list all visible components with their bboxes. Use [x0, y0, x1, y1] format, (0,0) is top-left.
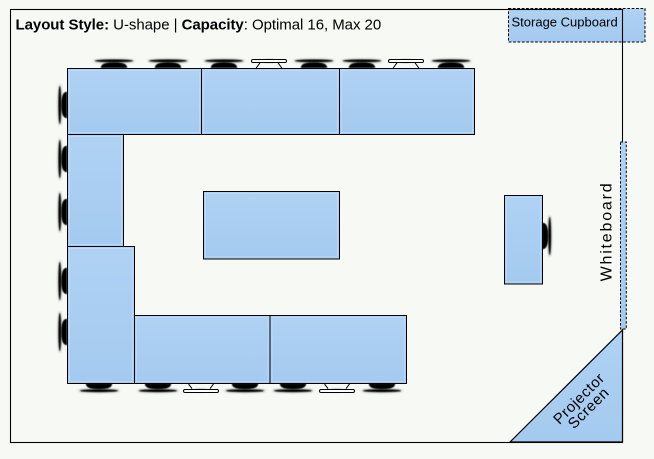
- svg-text:Layout Style: U-shape | Capaci: Layout Style: U-shape | Capacity: Optima…: [16, 17, 382, 34]
- svg-text:Whiteboard: Whiteboard: [599, 182, 616, 282]
- svg-text:Storage Cupboard: Storage Cupboard: [512, 15, 618, 30]
